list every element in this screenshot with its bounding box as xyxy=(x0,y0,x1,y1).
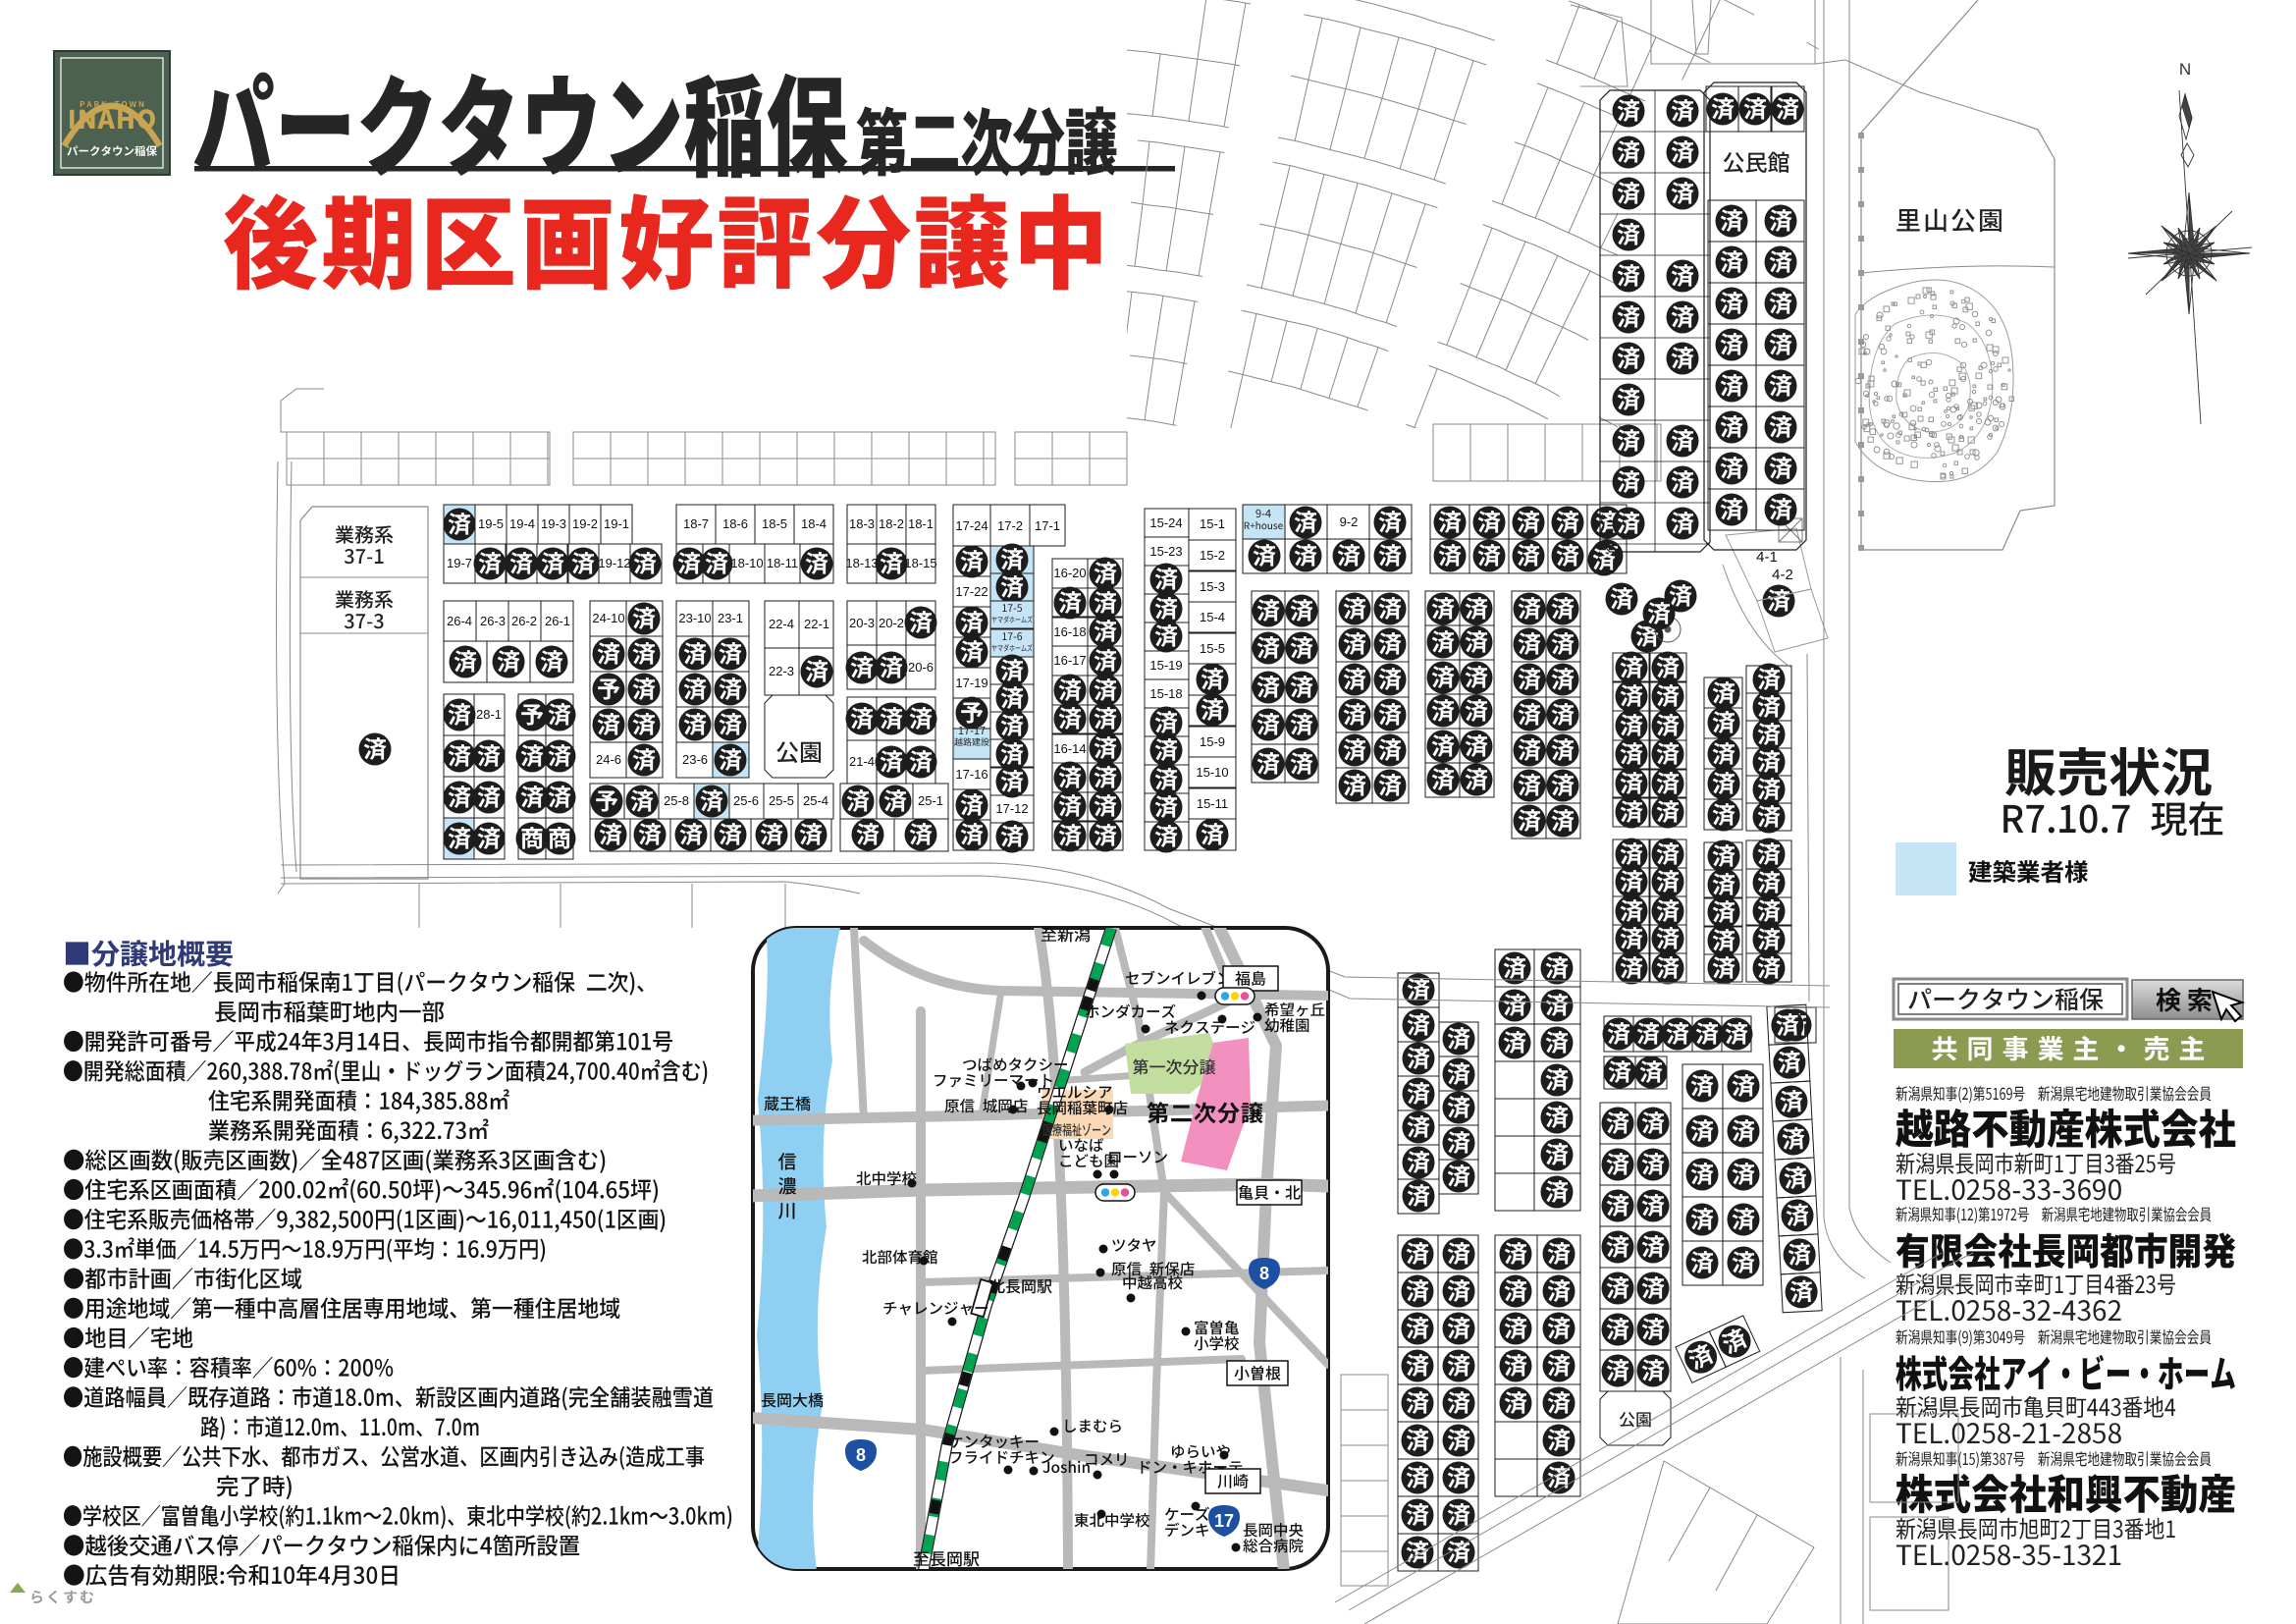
svg-text:15-11: 15-11 xyxy=(1197,796,1228,811)
svg-text:18-7: 18-7 xyxy=(683,516,709,531)
svg-text:16-14: 16-14 xyxy=(1053,741,1086,756)
svg-text:16-20: 16-20 xyxy=(1053,566,1086,580)
svg-text:15-23: 15-23 xyxy=(1149,544,1182,559)
svg-text:26-3: 26-3 xyxy=(480,614,506,628)
svg-text:25-8: 25-8 xyxy=(664,793,689,808)
svg-text:25-6: 25-6 xyxy=(733,793,759,808)
svg-text:26-1: 26-1 xyxy=(545,614,570,628)
svg-text:22-1: 22-1 xyxy=(804,617,829,631)
svg-text:17: 17 xyxy=(1214,1511,1234,1531)
svg-text:19-4: 19-4 xyxy=(509,516,535,531)
svg-text:25-5: 25-5 xyxy=(769,793,794,808)
svg-text:18-10: 18-10 xyxy=(730,556,763,570)
svg-text:15-18: 15-18 xyxy=(1149,686,1182,701)
svg-text:24-10: 24-10 xyxy=(592,611,624,625)
svg-text:9-2: 9-2 xyxy=(1340,514,1359,529)
svg-text:18-3: 18-3 xyxy=(849,516,875,531)
svg-text:20-2: 20-2 xyxy=(879,616,904,630)
svg-text:8: 8 xyxy=(856,1445,866,1465)
svg-text:17-1: 17-1 xyxy=(1035,518,1060,533)
svg-text:15-2: 15-2 xyxy=(1200,548,1225,563)
svg-text:N: N xyxy=(2179,60,2191,79)
svg-text:17-2: 17-2 xyxy=(997,518,1023,533)
svg-text:16-17: 16-17 xyxy=(1053,653,1086,668)
svg-text:17-22: 17-22 xyxy=(955,584,988,599)
svg-text:15-5: 15-5 xyxy=(1200,641,1225,656)
svg-text:17-16: 17-16 xyxy=(955,767,988,782)
svg-text:18-5: 18-5 xyxy=(762,516,787,531)
svg-text:19-7: 19-7 xyxy=(447,556,472,570)
svg-text:19-5: 19-5 xyxy=(478,516,504,531)
svg-text:26-4: 26-4 xyxy=(447,614,472,628)
svg-text:17-12: 17-12 xyxy=(995,801,1028,816)
svg-text:4-2: 4-2 xyxy=(1772,567,1793,583)
svg-text:18-1: 18-1 xyxy=(908,516,934,531)
svg-text:21-4: 21-4 xyxy=(849,754,875,769)
svg-text:19-12: 19-12 xyxy=(598,556,630,570)
svg-text:18-11: 18-11 xyxy=(767,556,798,570)
svg-text:15-24: 15-24 xyxy=(1149,515,1182,530)
svg-text:18-13: 18-13 xyxy=(845,556,878,570)
svg-text:23-10: 23-10 xyxy=(678,611,711,625)
svg-text:15-4: 15-4 xyxy=(1200,610,1225,624)
svg-text:18-6: 18-6 xyxy=(722,516,748,531)
svg-text:18-2: 18-2 xyxy=(879,516,904,531)
svg-text:16-18: 16-18 xyxy=(1053,624,1086,639)
svg-text:17-19: 17-19 xyxy=(955,676,988,690)
svg-text:23-6: 23-6 xyxy=(682,752,708,767)
svg-text:19-2: 19-2 xyxy=(572,516,598,531)
svg-text:17-24: 17-24 xyxy=(955,518,988,533)
svg-text:22-4: 22-4 xyxy=(769,617,794,631)
svg-text:24-6: 24-6 xyxy=(596,752,621,767)
svg-text:19-3: 19-3 xyxy=(541,516,566,531)
svg-text:15-9: 15-9 xyxy=(1200,734,1225,749)
svg-text:15-19: 15-19 xyxy=(1149,658,1182,673)
svg-text:26-2: 26-2 xyxy=(511,614,537,628)
svg-text:22-3: 22-3 xyxy=(769,664,794,678)
svg-text:28-1: 28-1 xyxy=(476,707,502,722)
svg-text:18-15: 18-15 xyxy=(904,556,936,570)
svg-text:20-3: 20-3 xyxy=(849,616,875,630)
svg-text:19-1: 19-1 xyxy=(604,516,629,531)
svg-text:25-1: 25-1 xyxy=(918,793,943,808)
svg-text:4-1: 4-1 xyxy=(1756,549,1778,566)
svg-text:15-3: 15-3 xyxy=(1200,579,1225,594)
svg-text:23-1: 23-1 xyxy=(718,611,743,625)
svg-text:25-4: 25-4 xyxy=(803,793,828,808)
svg-text:15-1: 15-1 xyxy=(1200,516,1225,531)
svg-text:18-4: 18-4 xyxy=(801,516,827,531)
svg-text:8: 8 xyxy=(1259,1264,1269,1283)
svg-text:20-6: 20-6 xyxy=(908,660,934,675)
svg-text:15-10: 15-10 xyxy=(1196,765,1228,780)
